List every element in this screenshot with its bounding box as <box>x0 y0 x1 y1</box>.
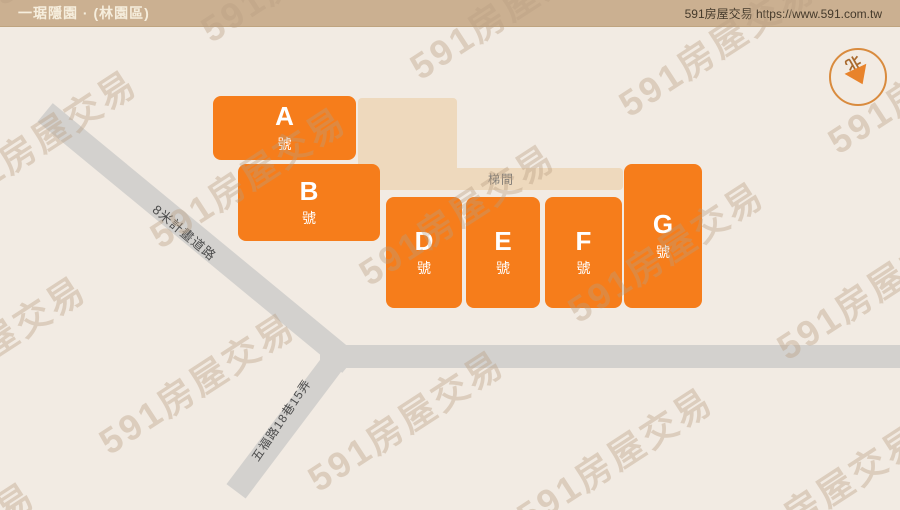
page-title: 一琚隱園 · (林園區) <box>18 3 150 23</box>
top-bar: 一琚隱園 · (林園區) 591房屋交易 https://www.591.com… <box>0 0 900 27</box>
building-letter: F <box>576 227 592 256</box>
building-A: A號 <box>213 96 356 160</box>
brand-url: 591房屋交易 https://www.591.com.tw <box>685 5 882 22</box>
site-plan: 8米計畫道路五福路18巷15弄梯間A號B號D號E號F號G號 <box>0 0 900 510</box>
building-E: E號 <box>466 197 540 308</box>
building-suffix: 號 <box>656 242 670 262</box>
stairwell-label: 梯間 <box>488 171 514 188</box>
building-letter: G <box>653 210 673 239</box>
building-G: G號 <box>624 164 702 308</box>
building-letter: A <box>275 102 294 131</box>
building-suffix: 號 <box>417 258 431 278</box>
road-3 <box>320 345 900 368</box>
building-letter: B <box>300 177 319 206</box>
site-plan-screenshot: 一琚隱園 · (林園區) 591房屋交易 https://www.591.com… <box>0 0 900 510</box>
building-D: D號 <box>386 197 462 308</box>
building-B: B號 <box>238 164 380 241</box>
building-suffix: 號 <box>577 258 591 278</box>
building-suffix: 號 <box>496 258 510 278</box>
building-suffix: 號 <box>302 208 316 228</box>
building-suffix: 號 <box>278 134 292 154</box>
building-letter: D <box>415 227 434 256</box>
building-F: F號 <box>545 197 622 308</box>
compass-icon: 北 <box>829 48 887 106</box>
building-letter: E <box>494 227 511 256</box>
